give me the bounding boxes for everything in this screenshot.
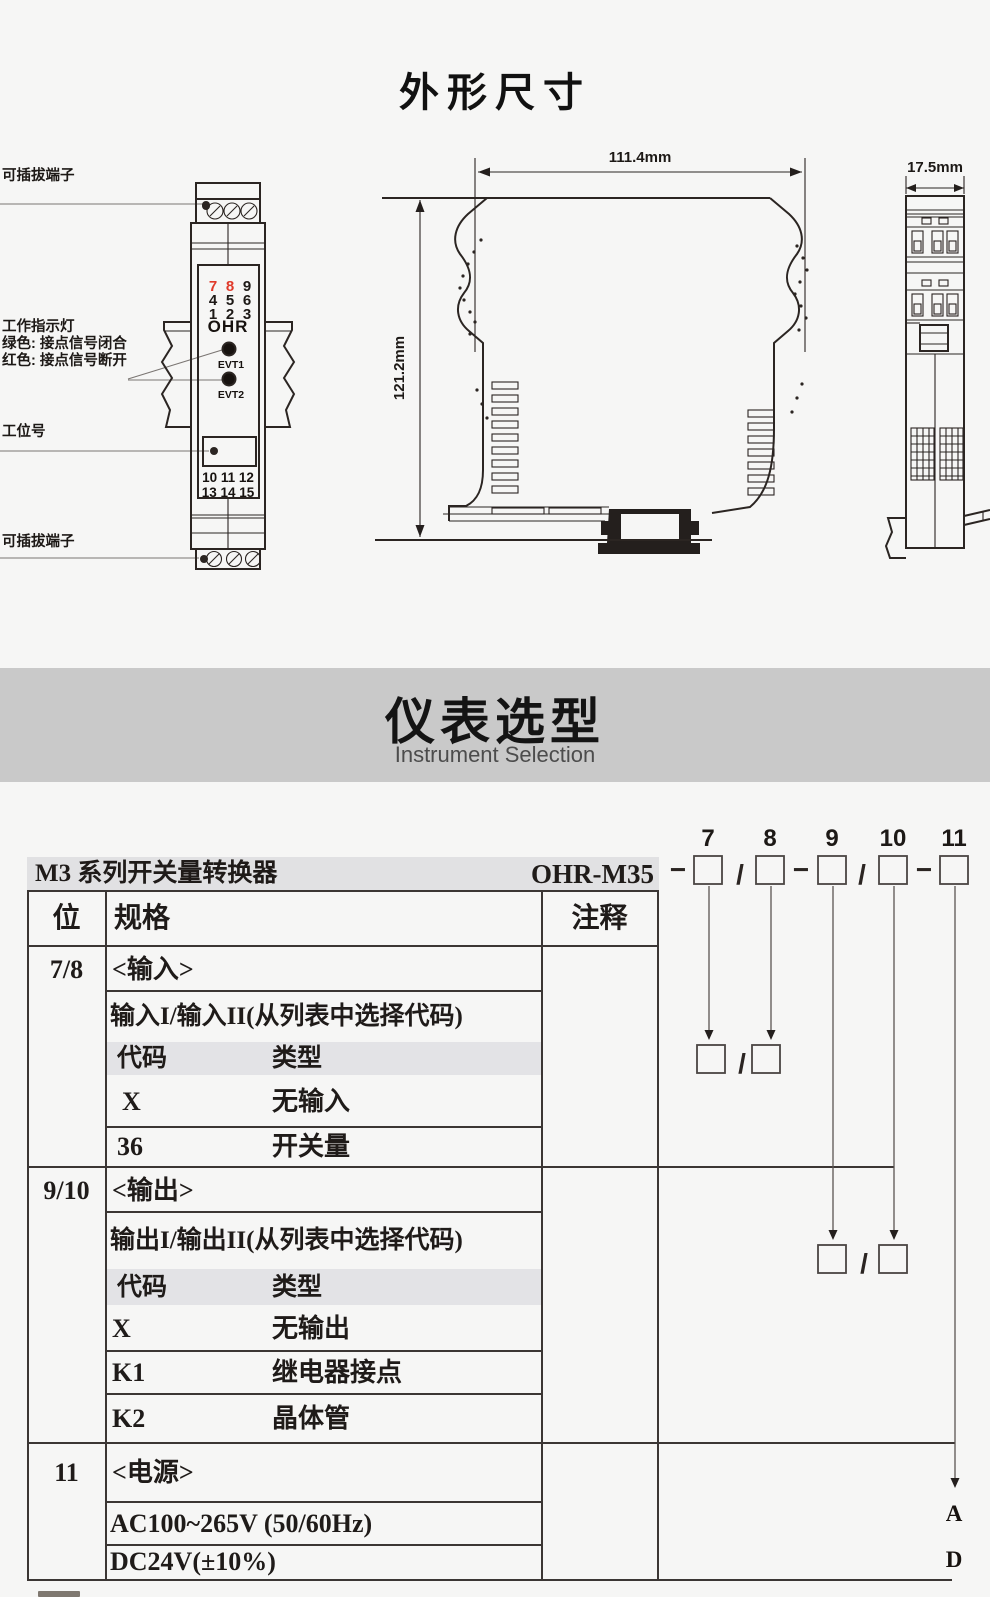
output1-code-box [818,1245,846,1273]
front-view-drawing: 7 8 9 4 5 6 1 2 3 OHR EVT1 EVT2 10 11 12… [162,183,294,569]
dash-symbol: − [916,854,932,885]
cutoff-mark [38,1591,80,1597]
slash-symbol: / [858,859,866,890]
label-pluggable-terminal-bottom: 可插拔端子 [2,532,75,550]
page-title: 外形尺寸 [0,60,990,118]
dim-depth: 17.5mm [907,159,963,176]
power-code-ac: A [946,1501,963,1526]
input2-code-box [752,1045,780,1073]
label-pluggable-terminal-top: 可插拔端子 [2,166,75,184]
label-indicator-green: 绿色: 接点信号闭合 [2,334,127,352]
slash-symbol: / [860,1248,868,1279]
latch [920,325,948,351]
side-view-drawing: 111.4mm 121.2mm [375,149,809,554]
power-code-dc: D [946,1547,963,1572]
label-indicator-title: 工作指示灯 [2,317,75,335]
brand-logo: OHR [208,317,249,336]
order-digit-11: 11 [941,825,966,852]
evt2-led-icon [223,373,236,386]
selection-subheading: Instrument Selection [0,742,990,768]
evt2-label: EVT2 [218,389,244,401]
datasheet-page: 外形尺寸 可插拔端子 工作指示灯 绿色: 接点信号闭合 红色: 接点信号断开 工… [0,0,990,1597]
order-digit-10: 10 [880,825,907,852]
evt1-led-icon [223,343,236,356]
order-code-diagram: 7 8 9 10 11 − − − / / / / A D [0,800,990,1597]
slash-symbol: / [736,859,744,890]
label-indicator-red: 红色: 接点信号断开 [2,351,127,369]
order-digit-8: 8 [763,825,776,852]
outline-dimension-drawing: 可插拔端子 工作指示灯 绿色: 接点信号闭合 红色: 接点信号断开 工位号 可插… [0,130,990,630]
slash-symbol: / [738,1048,746,1079]
texture-dots [458,238,808,419]
code-box-8 [756,856,784,884]
order-digit-9: 9 [825,825,838,852]
vent-slots [492,382,774,495]
label-station-number: 工位号 [2,422,46,440]
dash-symbol: − [670,854,686,885]
code-box-11 [940,856,968,884]
svg-text:10 11 12: 10 11 12 [202,470,254,485]
dim-width: 111.4mm [609,149,672,166]
evt1-label: EVT1 [218,359,244,371]
svg-text:13 14 15: 13 14 15 [202,485,255,500]
dim-height: 121.2mm [391,336,408,400]
narrow-side-view-drawing: 17.5mm [886,159,990,558]
dash-symbol: − [793,854,809,885]
order-digit-7: 7 [701,825,714,852]
code-box-10 [879,856,907,884]
output2-code-box [879,1245,907,1273]
code-box-7 [694,856,722,884]
screw-terminal-icons-bottom [207,552,261,567]
code-box-9 [818,856,846,884]
vent-grids [911,428,963,480]
screw-terminal-icons [207,203,257,219]
input1-code-box [697,1045,725,1073]
